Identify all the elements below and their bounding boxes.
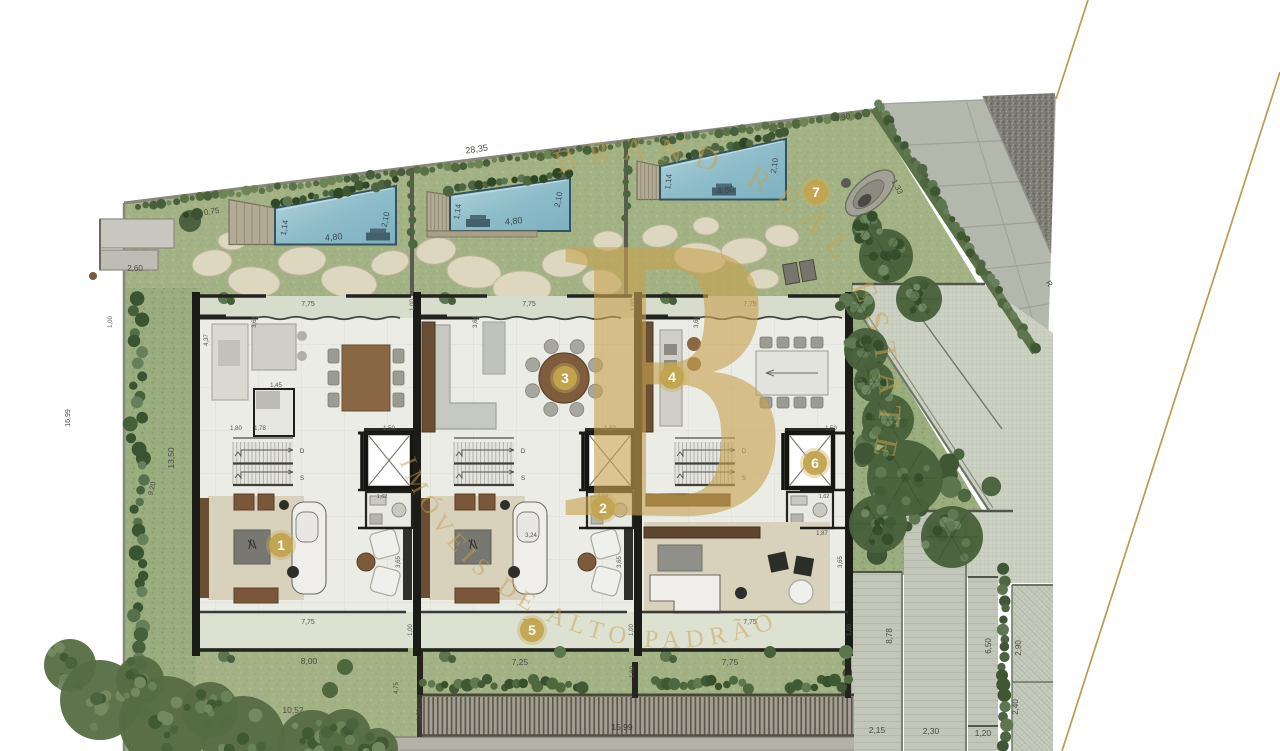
svg-text:1,78: 1,78	[254, 426, 266, 432]
svg-text:1,00: 1,00	[108, 316, 114, 328]
svg-text:6: 6	[811, 455, 819, 471]
svg-text:1,80: 1,80	[230, 426, 242, 432]
svg-text:2: 2	[599, 500, 607, 516]
svg-text:2,60: 2,60	[127, 264, 143, 273]
svg-text:S: S	[521, 476, 525, 482]
svg-text:1,50: 1,50	[825, 426, 837, 432]
svg-text:D: D	[300, 449, 305, 455]
svg-text:1,60: 1,60	[630, 666, 636, 678]
svg-text:1,50: 1,50	[383, 426, 395, 432]
svg-text:7,75: 7,75	[722, 657, 739, 667]
svg-text:4,80: 4,80	[324, 231, 342, 243]
svg-text:2,30: 2,30	[923, 726, 940, 736]
svg-text:1,60: 1,60	[416, 708, 423, 721]
svg-text:3,64: 3,64	[473, 316, 479, 328]
svg-text:1,62: 1,62	[377, 494, 388, 500]
svg-text:4: 4	[668, 369, 676, 385]
svg-text:7: 7	[812, 184, 820, 200]
svg-text:3,24: 3,24	[525, 533, 537, 539]
svg-text:1,87: 1,87	[816, 531, 828, 537]
svg-text:2,90: 2,90	[1014, 640, 1023, 656]
svg-text:7,25: 7,25	[512, 657, 529, 667]
svg-text:16,99: 16,99	[65, 409, 72, 427]
svg-text:3: 3	[561, 370, 569, 386]
svg-text:5: 5	[528, 622, 536, 638]
svg-text:2,40: 2,40	[1011, 699, 1020, 715]
svg-text:4,75: 4,75	[394, 682, 400, 694]
svg-text:4,37: 4,37	[425, 334, 431, 346]
svg-text:7,75: 7,75	[301, 301, 315, 308]
svg-text:7,75: 7,75	[522, 301, 536, 308]
svg-text:7,75: 7,75	[301, 619, 315, 626]
svg-text:8,78: 8,78	[885, 628, 894, 644]
svg-text:1,62: 1,62	[819, 494, 830, 500]
svg-text:6,50: 6,50	[984, 638, 993, 654]
svg-text:13,50: 13,50	[166, 447, 176, 469]
svg-text:15,99: 15,99	[611, 722, 633, 732]
svg-text:8,00: 8,00	[301, 656, 318, 666]
svg-text:D: D	[521, 449, 526, 455]
svg-text:3,64: 3,64	[252, 316, 258, 328]
svg-text:1,45: 1,45	[270, 383, 282, 389]
svg-text:1,20: 1,20	[975, 728, 992, 738]
svg-text:4,80: 4,80	[504, 215, 522, 227]
svg-text:1,00: 1,00	[410, 299, 416, 311]
svg-text:1: 1	[277, 537, 285, 553]
svg-text:3,65: 3,65	[396, 556, 402, 568]
svg-text:1,00: 1,00	[847, 624, 853, 636]
svg-text:4,37: 4,37	[204, 334, 210, 346]
svg-text:3,65: 3,65	[838, 556, 844, 568]
svg-text:1,00: 1,00	[408, 624, 414, 636]
svg-text:S: S	[300, 476, 304, 482]
svg-text:2,15: 2,15	[869, 725, 886, 735]
